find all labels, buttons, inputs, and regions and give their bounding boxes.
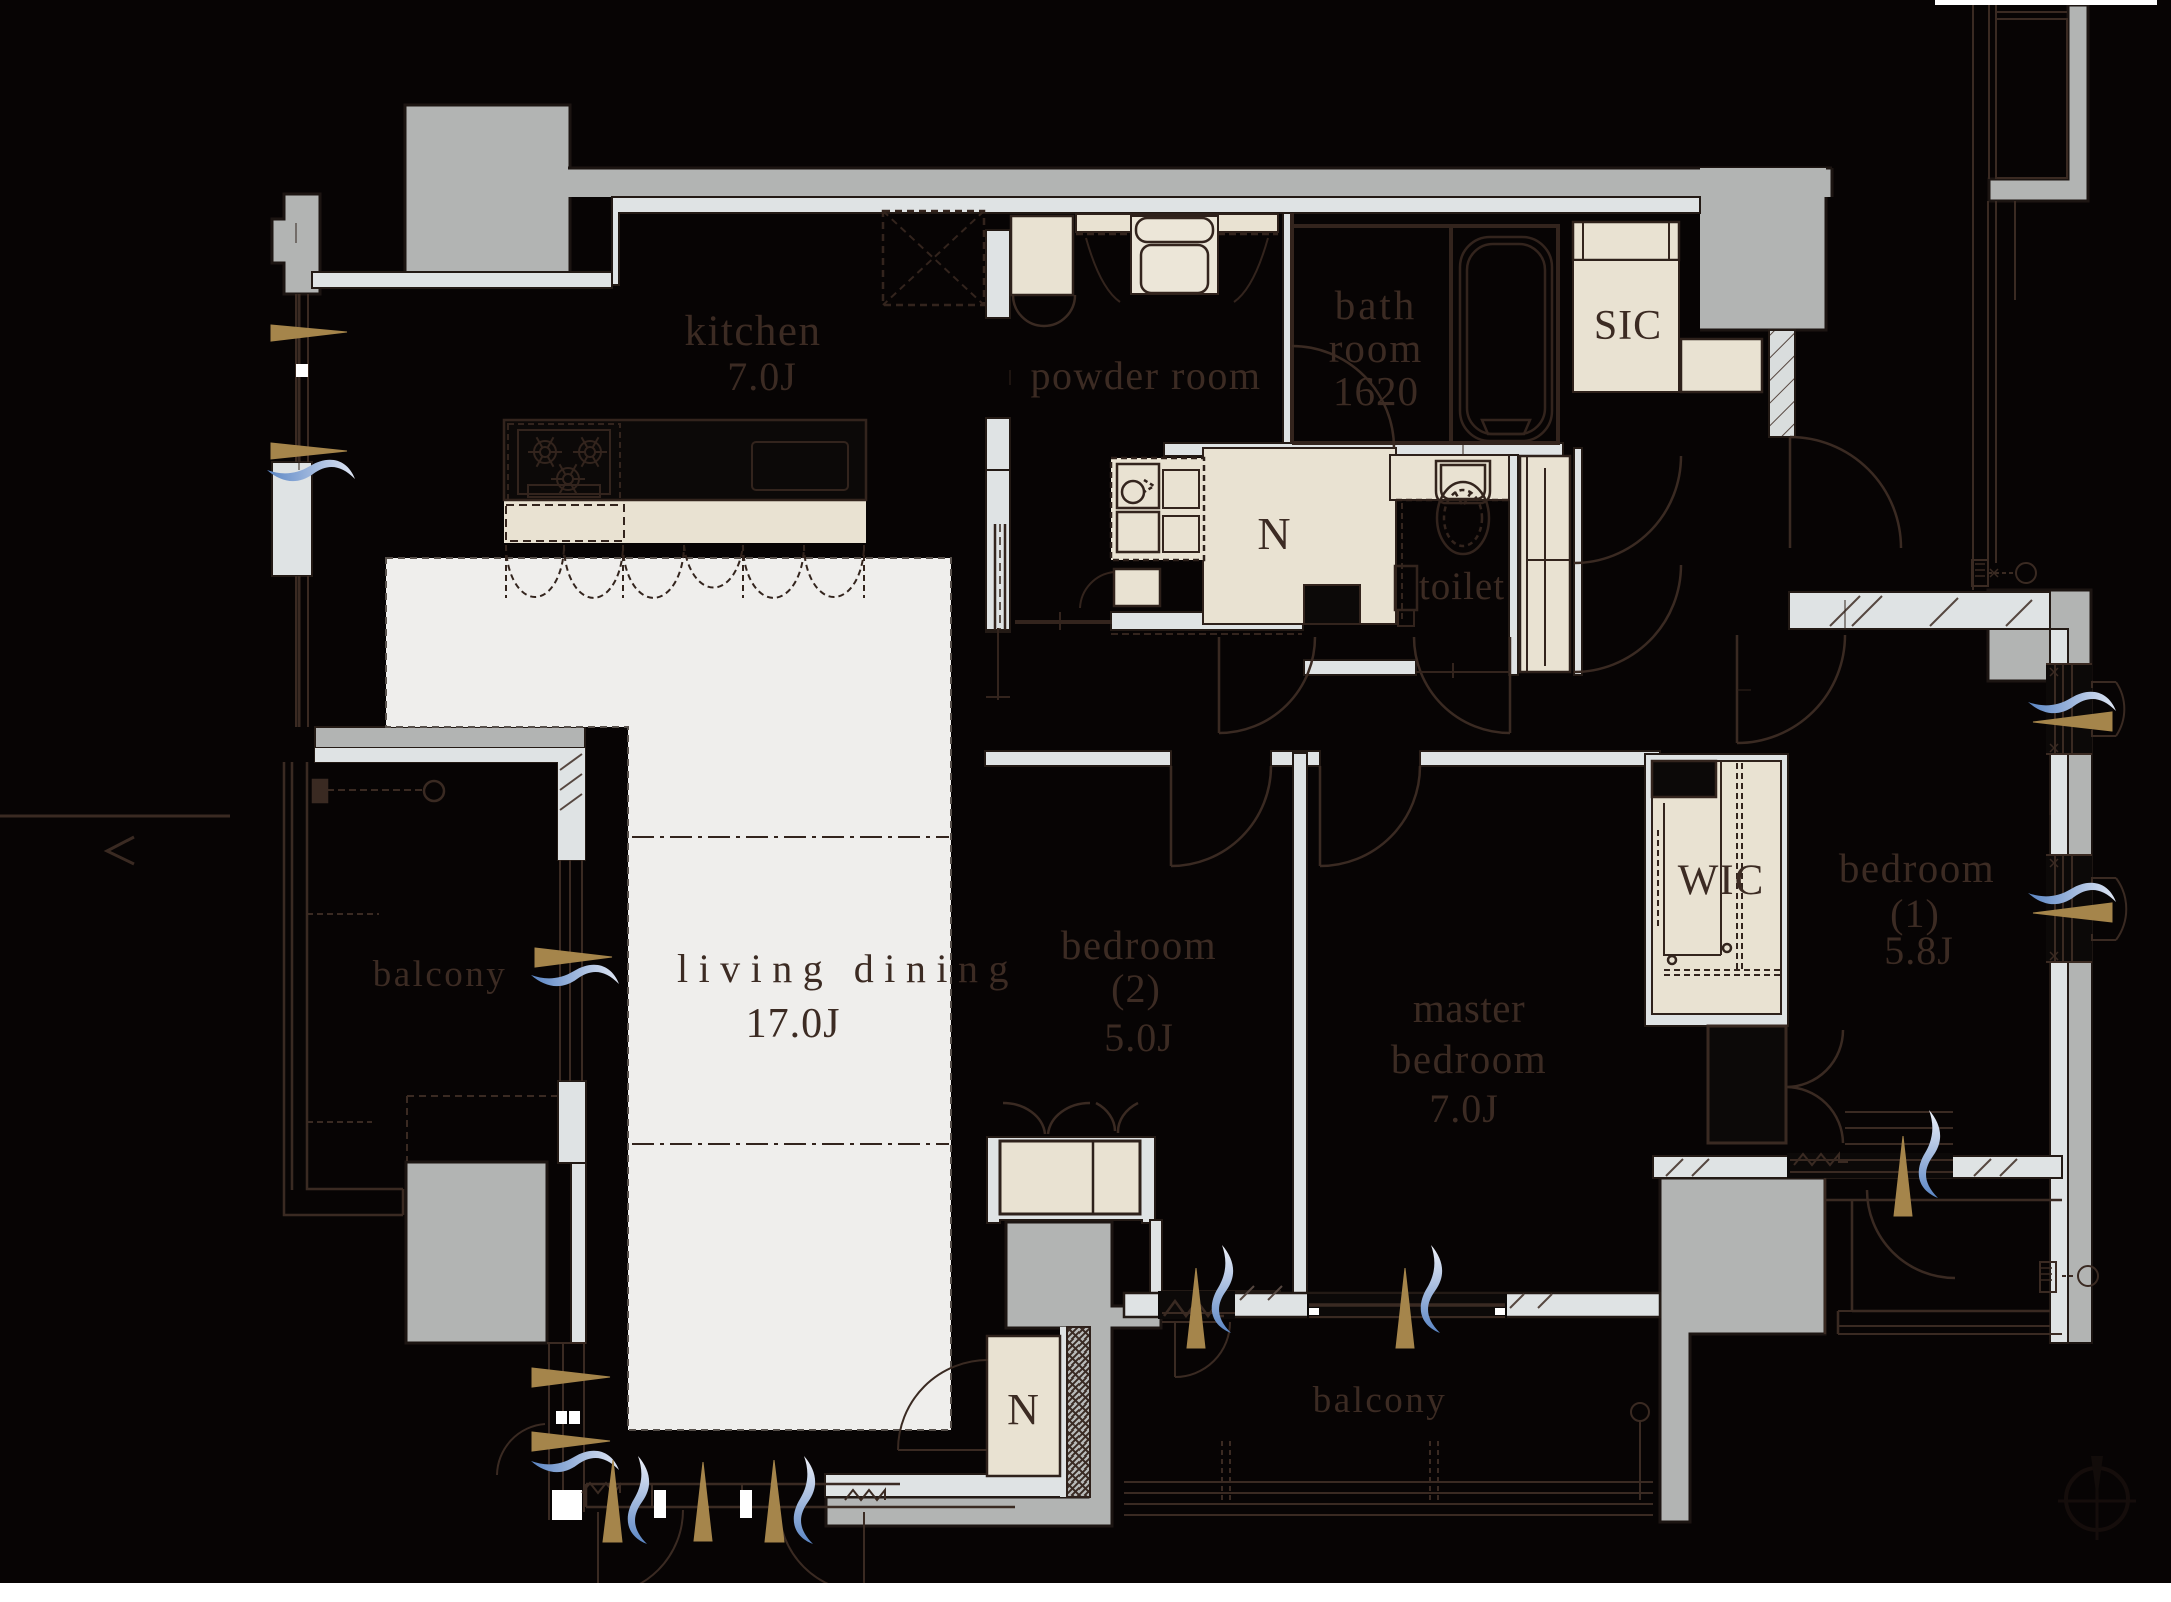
svg-text:N: N (1257, 508, 1290, 559)
svg-text:powder room: powder room (1031, 353, 1262, 398)
svg-text:7.0J: 7.0J (1429, 1086, 1499, 1131)
svg-text:17.0J: 17.0J (746, 1001, 841, 1047)
svg-text:5.8J: 5.8J (1884, 928, 1954, 973)
svg-text:balcony: balcony (1313, 1380, 1448, 1421)
svg-text:bath: bath (1335, 282, 1418, 328)
svg-text:1620: 1620 (1333, 368, 1419, 414)
svg-text:living dining: living dining (677, 946, 1019, 991)
svg-text:7.0J: 7.0J (727, 354, 797, 399)
svg-text:balcony: balcony (373, 954, 508, 995)
svg-text:bedroom: bedroom (1061, 922, 1217, 968)
svg-text:room: room (1329, 325, 1424, 371)
svg-text:kitchen: kitchen (684, 308, 821, 355)
svg-text:bedroom: bedroom (1839, 845, 1995, 891)
svg-text:master: master (1413, 985, 1525, 1031)
svg-text:toilet: toilet (1419, 565, 1505, 608)
svg-text:WIC: WIC (1678, 857, 1765, 904)
svg-text:N: N (1007, 1385, 1039, 1434)
svg-text:bedroom: bedroom (1391, 1036, 1547, 1082)
svg-text:(2): (2) (1111, 966, 1161, 1011)
svg-text:SIC: SIC (1594, 303, 1662, 349)
svg-text:5.0J: 5.0J (1104, 1015, 1174, 1060)
